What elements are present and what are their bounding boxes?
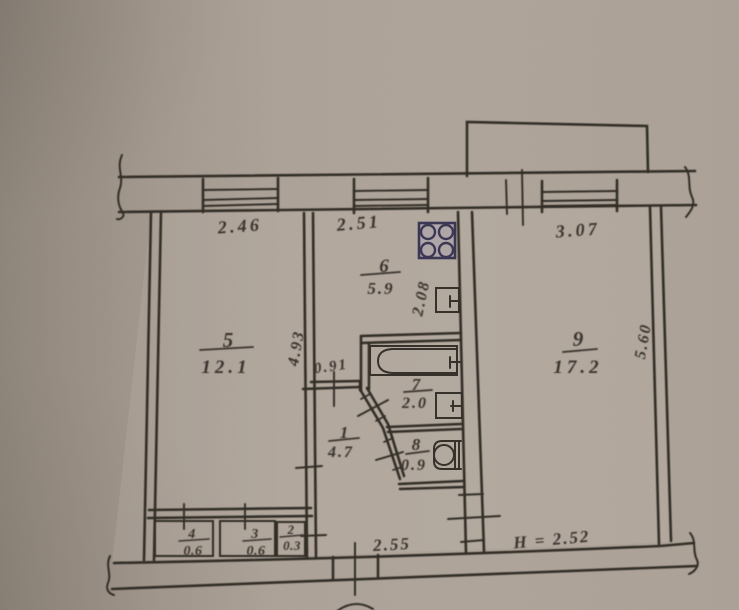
svg-text:0.6: 0.6 [184, 544, 203, 559]
svg-text:9: 9 [573, 327, 586, 351]
svg-text:0.3: 0.3 [283, 538, 301, 553]
svg-text:2.46: 2.46 [216, 214, 263, 237]
svg-text:2.55: 2.55 [372, 534, 412, 555]
svg-text:17.2: 17.2 [553, 357, 602, 378]
svg-text:4.7: 4.7 [327, 444, 354, 461]
svg-text:0.6: 0.6 [247, 544, 266, 559]
svg-text:12.1: 12.1 [201, 357, 250, 378]
svg-text:2.51: 2.51 [335, 211, 382, 235]
svg-text:0.9: 0.9 [401, 457, 427, 474]
svg-text:2.0: 2.0 [401, 395, 428, 412]
svg-text:5.9: 5.9 [367, 279, 394, 298]
svg-text:3.07: 3.07 [554, 218, 601, 241]
svg-text:2: 2 [287, 522, 295, 537]
svg-text:8: 8 [412, 435, 423, 454]
